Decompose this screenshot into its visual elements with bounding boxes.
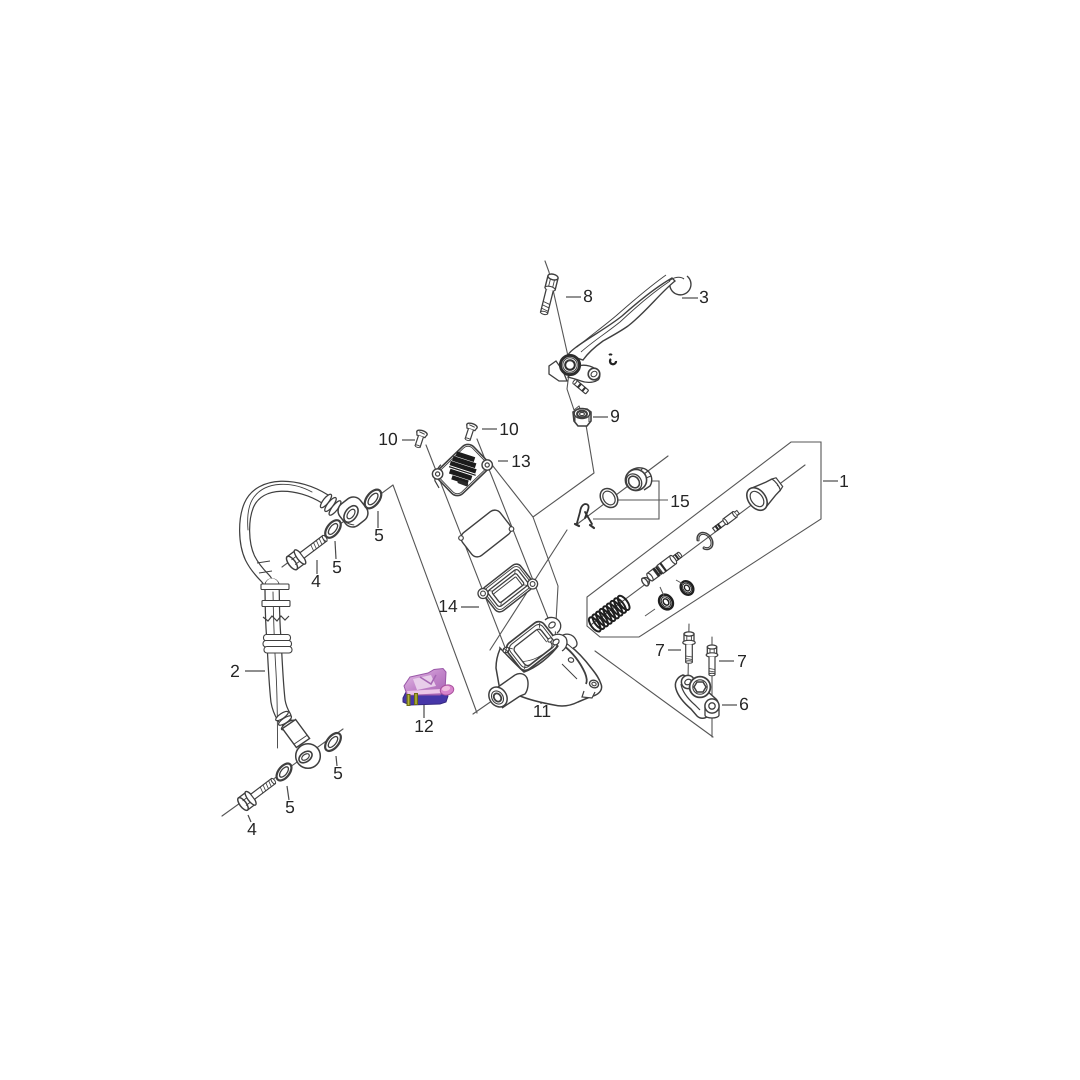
- svg-text:8: 8: [583, 286, 593, 306]
- svg-text:15: 15: [670, 491, 689, 511]
- svg-text:4: 4: [247, 819, 257, 839]
- svg-text:9: 9: [610, 406, 620, 426]
- svg-text:1: 1: [839, 471, 849, 491]
- svg-text:2: 2: [230, 661, 240, 681]
- svg-text:10: 10: [499, 419, 519, 439]
- svg-text:6: 6: [739, 694, 749, 714]
- svg-text:3: 3: [699, 287, 709, 307]
- svg-text:14: 14: [438, 596, 458, 616]
- svg-text:5: 5: [332, 557, 342, 577]
- svg-text:5: 5: [333, 763, 343, 783]
- svg-text:5: 5: [374, 525, 384, 545]
- svg-text:7: 7: [737, 651, 747, 671]
- svg-text:11: 11: [533, 701, 551, 721]
- svg-text:10: 10: [378, 429, 398, 449]
- svg-text:5: 5: [285, 797, 295, 817]
- svg-text:7: 7: [655, 640, 665, 660]
- svg-text:4: 4: [311, 571, 321, 591]
- svg-text:12: 12: [414, 716, 433, 736]
- svg-text:13: 13: [511, 451, 530, 471]
